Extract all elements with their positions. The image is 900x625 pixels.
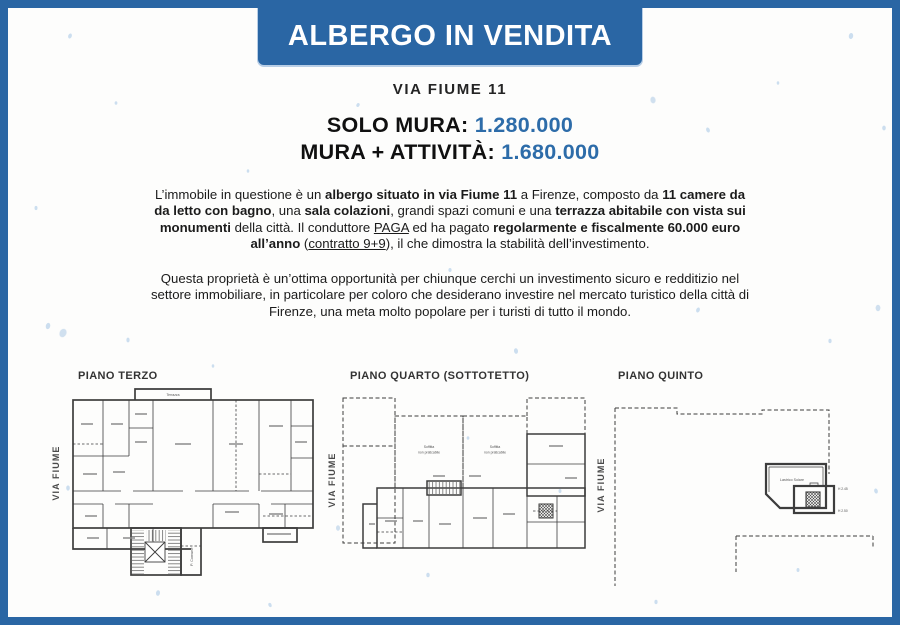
header-banner: ALBERGO IN VENDITA [258,8,642,65]
floor-plan-terzo-drawing: Terrazza P. Comune [63,386,323,601]
price-label: MURA + ATTIVITÀ: [300,140,501,164]
attic-room-label-line2: non praticabile [484,451,506,455]
description-paragraph-2: Questa proprietà è un’ottima opportunità… [150,271,750,320]
stair-hatch [168,530,180,574]
page-title: ALBERGO IN VENDITA [288,20,612,53]
elevator-shaft [145,542,165,562]
roof-structure-walls [766,464,834,513]
price-value: 1.280.000 [475,113,573,137]
street-label-via-fiume-1: VIA FIUME [51,441,63,505]
height-annotation-1: H 2.45 [838,487,848,491]
elevator-shaft [539,504,553,518]
height-annotation-2: H 2.50 [838,509,848,513]
price-line-mura-attivita: MURA + ATTIVITÀ: 1.680.000 [8,139,892,166]
floor-plan-quarto-drawing: Soffitta non praticabile Soffitta non pr… [333,386,593,601]
roof-terrace-label: Lastrico Solare [780,478,804,482]
plan-title-quinto: PIANO QUINTO [618,370,703,382]
stair-hatch [146,530,166,541]
address-line: VIA FIUME 11 [8,81,892,98]
description-paragraph-1: L’immobile in questione è un albergo sit… [150,187,750,253]
elevator-shaft [806,492,820,507]
terrace-label: Terrazza [166,393,179,397]
flyer-page: ALBERGO IN VENDITA VIA FIUME 11 SOLO MUR… [0,0,900,625]
price-line-solo-mura: SOLO MURA: 1.280.000 [8,112,892,139]
stair-hatch [132,530,144,574]
attic-room-label-line2: non praticabile [418,451,440,455]
price-value: 1.680.000 [501,140,599,164]
illegible-room-annotations [81,414,307,538]
attic-room-label-line1: Soffitta [490,445,501,449]
floor-plan-quinto-drawing: Lastrico Solare H 2.45 H 2.50 [596,386,881,604]
stairwell-label: P. Comune [190,547,194,566]
plan-title-quarto: PIANO QUARTO (SOTTOTETTO) [350,370,529,382]
attic-room-label-line1: Soffitta [424,445,435,449]
pricing-block: SOLO MURA: 1.280.000 MURA + ATTIVITÀ: 1.… [8,112,892,166]
stair-hatch [428,482,460,494]
price-label: SOLO MURA: [327,113,475,137]
plan-title-terzo: PIANO TERZO [78,370,158,382]
